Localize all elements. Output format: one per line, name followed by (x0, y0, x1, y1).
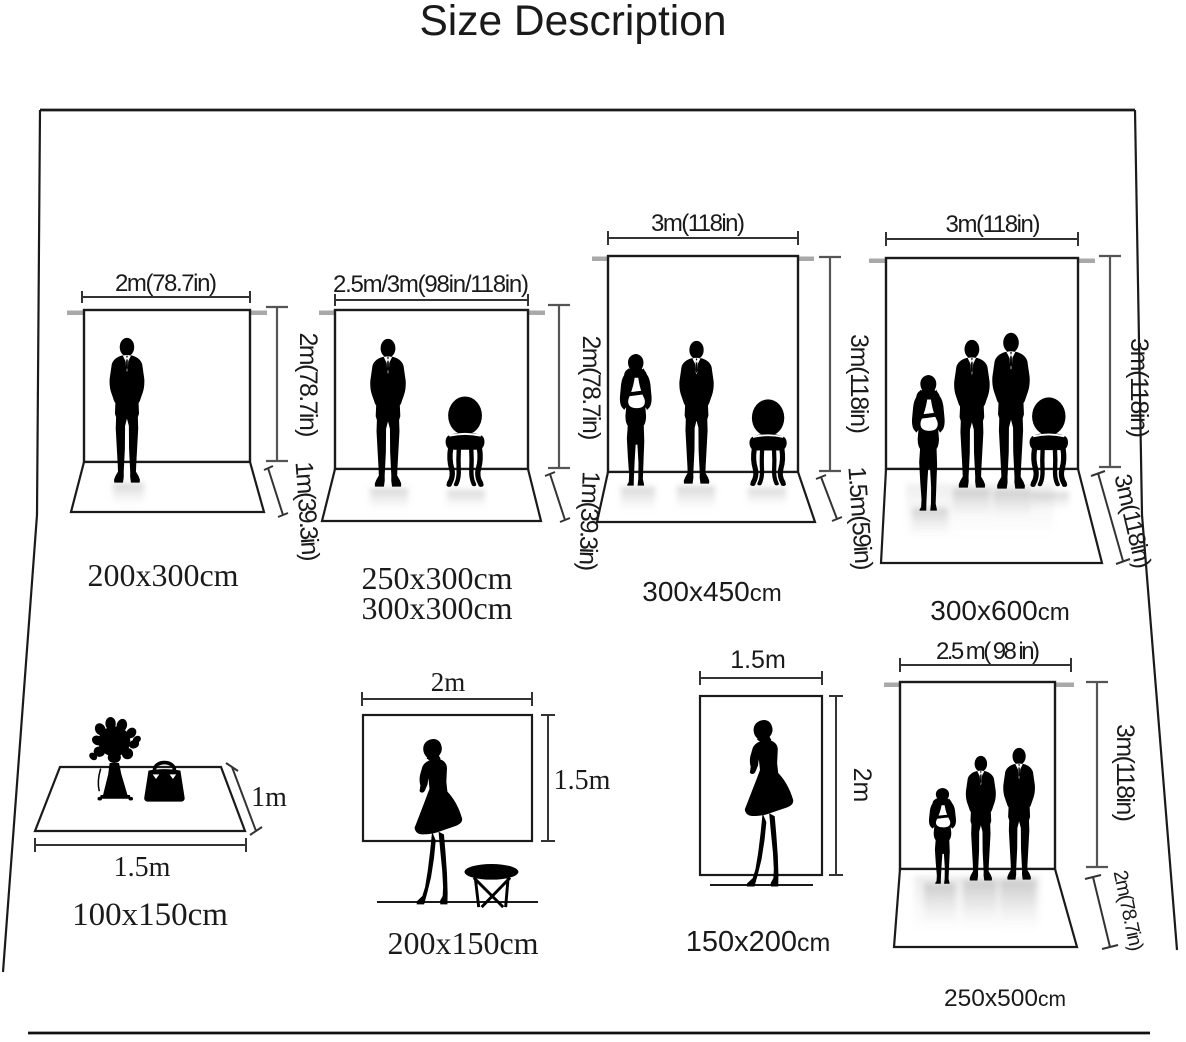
svg-text:2m: 2m (431, 667, 466, 697)
svg-text:2m(78.7in): 2m(78.7in) (115, 270, 217, 297)
svg-text:1m: 1m (251, 782, 287, 813)
svg-text:2m(78.7in): 2m(78.7in) (294, 333, 322, 438)
svg-text:2m: 2m (848, 768, 876, 803)
svg-text:100x150cm: 100x150cm (72, 897, 228, 933)
svg-text:300x450cm: 300x450cm (642, 576, 781, 607)
svg-text:1.5m: 1.5m (554, 765, 611, 796)
svg-text:150x200cm: 150x200cm (686, 926, 831, 958)
svg-text:2.5 m( 98 in): 2.5 m( 98 in) (936, 638, 1040, 665)
svg-text:2.5m/3m(98in/118in): 2.5m/3m(98in/118in) (333, 271, 529, 298)
svg-text:3m(118in): 3m(118in) (651, 210, 745, 237)
svg-text:1.5m: 1.5m (114, 852, 171, 883)
svg-text:200x150cm: 200x150cm (387, 925, 538, 961)
svg-text:300x600cm: 300x600cm (930, 595, 1069, 626)
svg-text:250x500cm: 250x500cm (944, 985, 1066, 1012)
svg-text:3m(118in): 3m(118in) (1111, 724, 1139, 822)
svg-text:200x300cm: 200x300cm (87, 557, 238, 593)
svg-text:300x300cm: 300x300cm (361, 590, 512, 626)
svg-text:3m(118in): 3m(118in) (845, 334, 873, 434)
svg-text:Size Description: Size Description (419, 0, 726, 45)
svg-text:1.5m: 1.5m (730, 646, 786, 674)
svg-text:3m(118in): 3m(118in) (946, 211, 1041, 238)
svg-text:3m(118in): 3m(118in) (1125, 338, 1153, 438)
svg-text:2m(78.7in): 2m(78.7in) (577, 336, 605, 441)
